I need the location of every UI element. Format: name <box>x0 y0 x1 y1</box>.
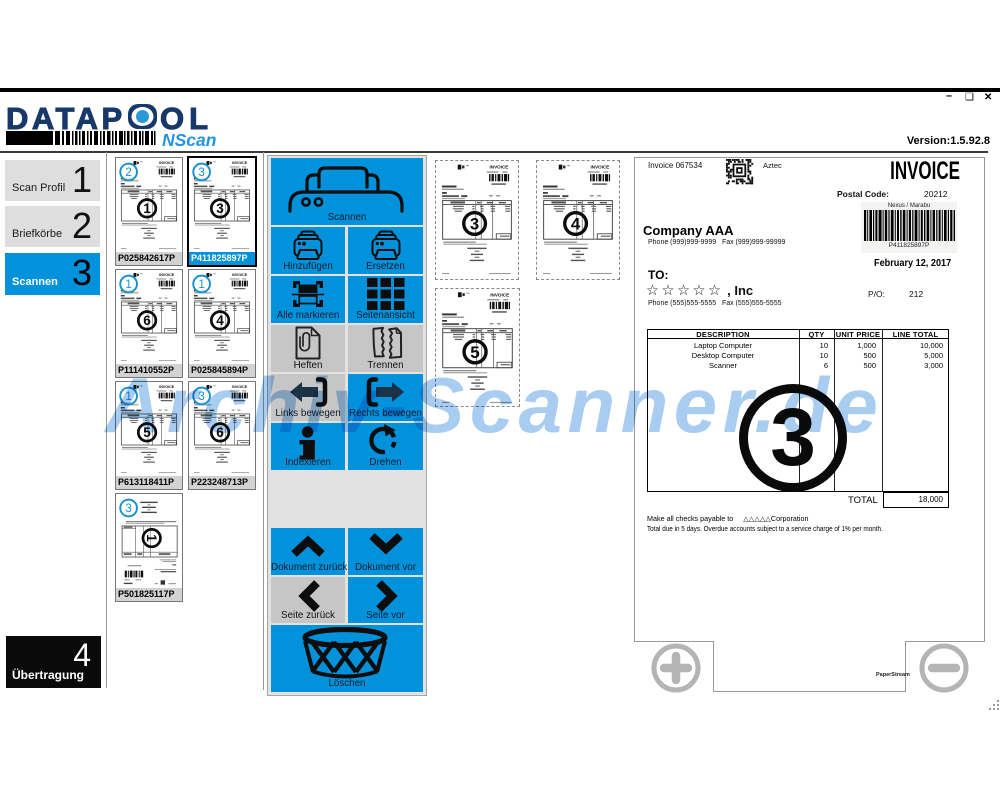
svg-text:1: 1 <box>125 278 131 291</box>
svg-text:2: 2 <box>125 166 131 179</box>
svg-text:3: 3 <box>198 166 204 179</box>
svg-text:6: 6 <box>143 313 151 328</box>
svg-text:3: 3 <box>470 215 479 234</box>
svg-text:4: 4 <box>571 215 581 234</box>
svg-text:1: 1 <box>143 201 151 216</box>
svg-text:1: 1 <box>198 278 204 291</box>
svg-text:4: 4 <box>216 313 224 328</box>
svg-text:NScan: NScan <box>162 130 216 150</box>
svg-text:3: 3 <box>125 502 131 515</box>
svg-text:DATAP: DATAP <box>6 101 126 136</box>
svg-text:3: 3 <box>216 201 224 216</box>
svg-text:1: 1 <box>144 534 159 542</box>
